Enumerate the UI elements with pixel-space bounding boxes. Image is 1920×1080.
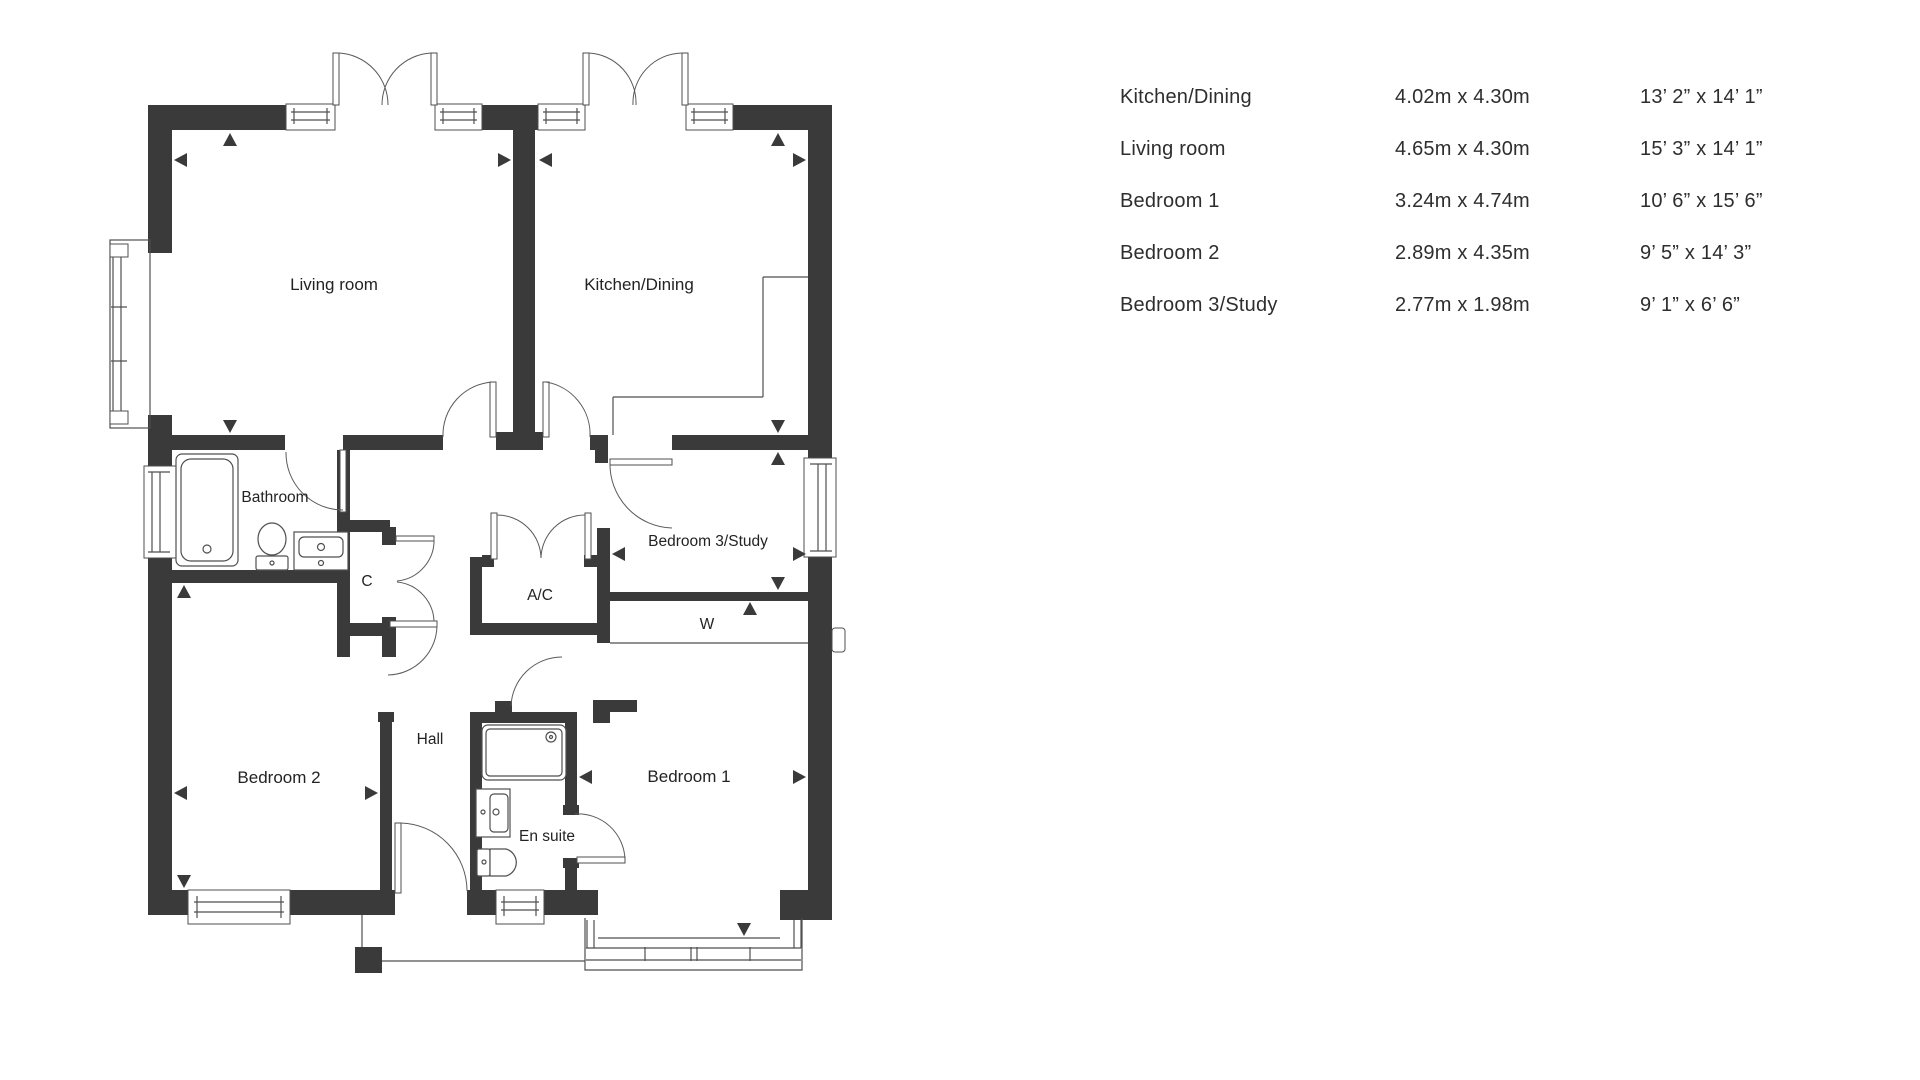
- table-row: Bedroom 2 2.89m x 4.35m 9’ 5” x 14’ 3”: [1120, 242, 1870, 294]
- room-metric: 3.24m x 4.74m: [1395, 190, 1640, 213]
- bathroom-toilet: [256, 523, 288, 570]
- room-name: Bedroom 2: [1120, 242, 1395, 265]
- room-imperial: 10’ 6” x 15’ 6”: [1640, 190, 1870, 213]
- kitchen-counter: [613, 277, 808, 435]
- ac-label: A/C: [527, 587, 553, 604]
- room-metric: 4.02m x 4.30m: [1395, 86, 1640, 109]
- hall-rear-door: [511, 657, 562, 706]
- bedroom2-label: Bedroom 2: [237, 768, 320, 787]
- table-row: Bedroom 3/Study 2.77m x 1.98m 9’ 1” x 6’…: [1120, 294, 1870, 346]
- porch-outline: [362, 915, 585, 961]
- window-top-left-of-living-doors: [286, 104, 335, 130]
- window-top-left-of-kitchen-doors: [538, 104, 585, 130]
- living-room-bay-window: [110, 240, 150, 428]
- floorplan-page: Living room Kitchen/Dining Bathroom C A/…: [0, 0, 1920, 1080]
- living-room-french-doors: [333, 53, 437, 105]
- cupboard-doors: [396, 536, 434, 626]
- bathroom-sink: [294, 532, 348, 570]
- kitchen-hall-door: [543, 382, 590, 437]
- room-imperial: 15’ 3” x 14’ 1”: [1640, 138, 1870, 161]
- room-imperial: 9’ 1” x 6’ 6”: [1640, 294, 1870, 317]
- ac-closet-doors: [491, 513, 591, 559]
- ensuite-toilet: [477, 849, 516, 876]
- window-top-right-of-kitchen-doors: [686, 104, 733, 130]
- cupboard-label: C: [361, 573, 372, 590]
- room-metric: 4.65m x 4.30m: [1395, 138, 1640, 161]
- front-door: [395, 823, 467, 893]
- ensuite-door: [575, 814, 625, 863]
- ensuite-window: [496, 890, 544, 924]
- kitchen-french-doors: [583, 53, 688, 105]
- window-top-right-of-living-doors: [435, 104, 482, 130]
- room-imperial: 13’ 2” x 14’ 1”: [1640, 86, 1870, 109]
- table-row: Bedroom 1 3.24m x 4.74m 10’ 6” x 15’ 6”: [1120, 190, 1870, 242]
- living-room-label: Living room: [290, 275, 378, 294]
- table-row: Living room 4.65m x 4.30m 15’ 3” x 14’ 1…: [1120, 138, 1870, 190]
- bedroom2-window: [188, 890, 290, 924]
- room-name: Bedroom 1: [1120, 190, 1395, 213]
- bedroom3-study-label: Bedroom 3/Study: [648, 533, 768, 550]
- room-name: Bedroom 3/Study: [1120, 294, 1395, 317]
- room-metric: 2.89m x 4.35m: [1395, 242, 1640, 265]
- ensuite-sink: [476, 789, 510, 837]
- wardrobe-label: W: [700, 616, 715, 633]
- room-name: Living room: [1120, 138, 1395, 161]
- bedroom3-window: [804, 458, 836, 557]
- living-room-hall-door: [443, 382, 496, 437]
- bathroom-label: Bathroom: [241, 489, 308, 506]
- room-name: Kitchen/Dining: [1120, 86, 1395, 109]
- bedroom1-label: Bedroom 1: [647, 767, 730, 786]
- hall-label: Hall: [417, 731, 444, 748]
- bedroom3-door: [610, 459, 672, 528]
- table-row: Kitchen/Dining 4.02m x 4.30m 13’ 2” x 14…: [1120, 86, 1870, 138]
- room-imperial: 9’ 5” x 14’ 3”: [1640, 242, 1870, 265]
- room-metric: 2.77m x 1.98m: [1395, 294, 1640, 317]
- room-dimensions-table: Kitchen/Dining 4.02m x 4.30m 13’ 2” x 14…: [1120, 86, 1870, 346]
- shower: [482, 725, 566, 780]
- kitchen-dining-label: Kitchen/Dining: [584, 275, 694, 294]
- bedroom1-bay-window: [585, 918, 802, 970]
- bathtub: [176, 454, 238, 566]
- ensuite-label: En suite: [519, 828, 575, 845]
- meter-box: [832, 628, 845, 652]
- bathroom-window: [144, 466, 176, 558]
